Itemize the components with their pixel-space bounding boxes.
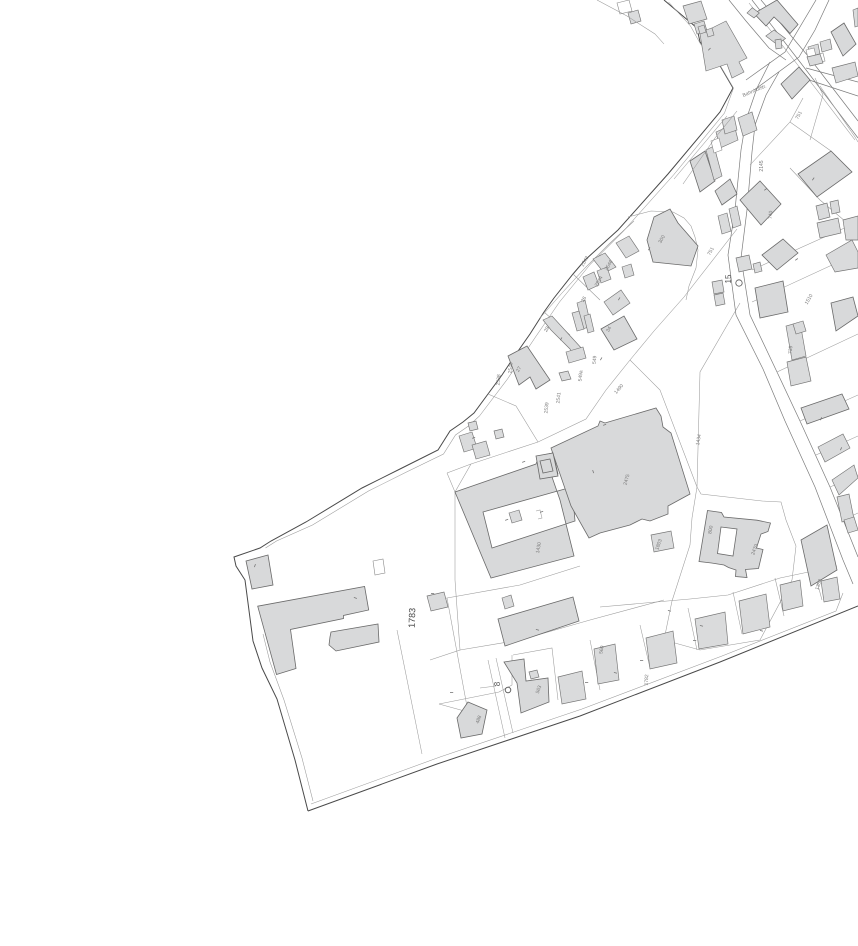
svg-text:2538: 2538 [496,374,503,386]
svg-text:740: 740 [768,210,775,219]
svg-text:1782: 1782 [644,674,650,686]
svg-text:1783: 1783 [407,608,418,628]
svg-text:2541: 2541 [556,392,563,404]
svg-text:739: 739 [788,345,795,354]
svg-text:8: 8 [493,681,502,686]
svg-text:549: 549 [592,355,599,364]
svg-text:2539: 2539 [544,402,551,414]
svg-text:15: 15 [724,274,733,283]
svg-text:549a: 549a [578,370,585,382]
svg-text:2540: 2540 [508,362,515,374]
svg-text:2145: 2145 [759,160,765,171]
